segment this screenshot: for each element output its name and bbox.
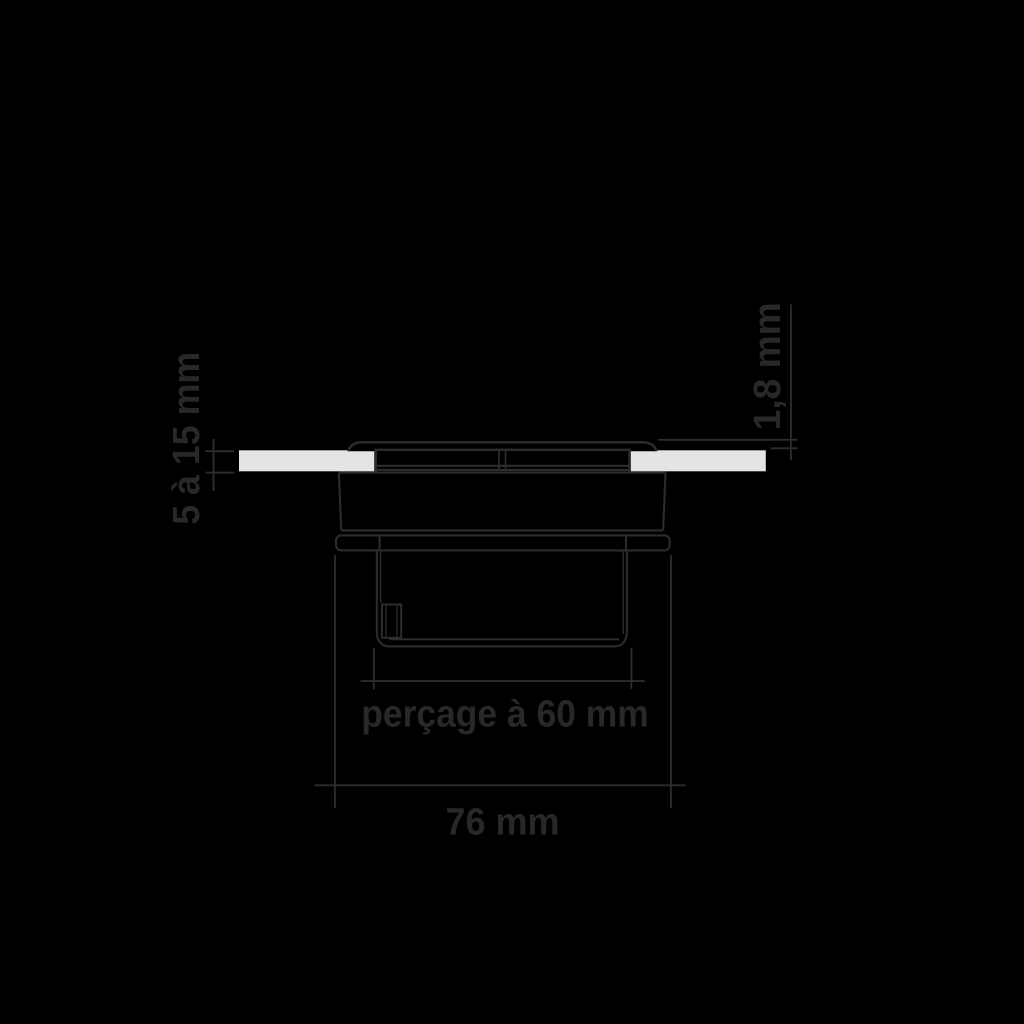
svg-text:1,8 mm: 1,8 mm [746,302,789,430]
svg-text:perçage à 60 mm: perçage à 60 mm [361,692,649,735]
svg-text:76 mm: 76 mm [446,801,560,844]
svg-text:5 à 15 mm: 5 à 15 mm [165,352,208,525]
